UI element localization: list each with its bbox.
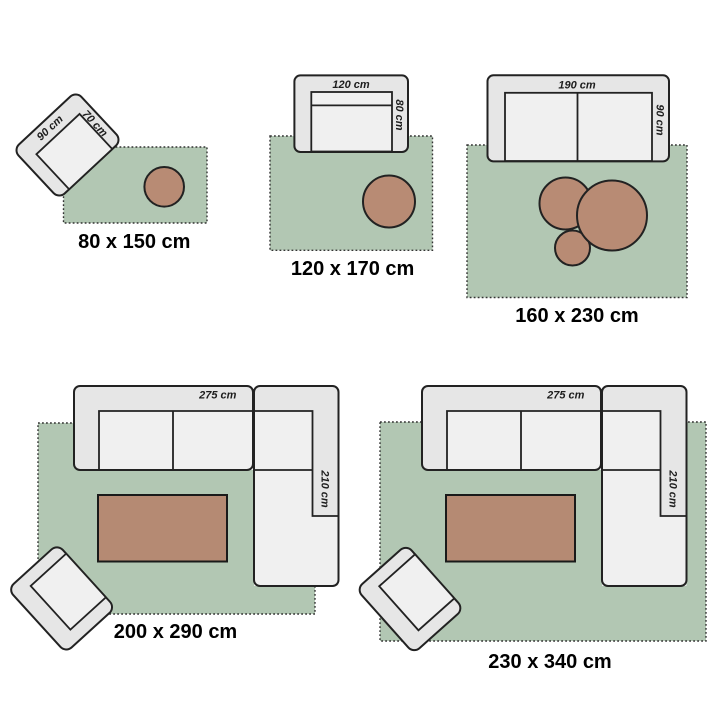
svg-text:80 cm: 80 cm	[393, 99, 405, 130]
svg-text:200 x 290 cm: 200 x 290 cm	[114, 621, 237, 643]
svg-text:120 x 170 cm: 120 x 170 cm	[291, 258, 414, 280]
svg-text:230 x 340 cm: 230 x 340 cm	[488, 651, 611, 673]
svg-text:120 cm: 120 cm	[332, 79, 370, 91]
svg-text:90 cm: 90 cm	[654, 104, 666, 135]
svg-text:190 cm: 190 cm	[558, 80, 596, 92]
svg-text:160 x 230 cm: 160 x 230 cm	[515, 305, 638, 327]
svg-text:80 x 150 cm: 80 x 150 cm	[78, 231, 190, 253]
